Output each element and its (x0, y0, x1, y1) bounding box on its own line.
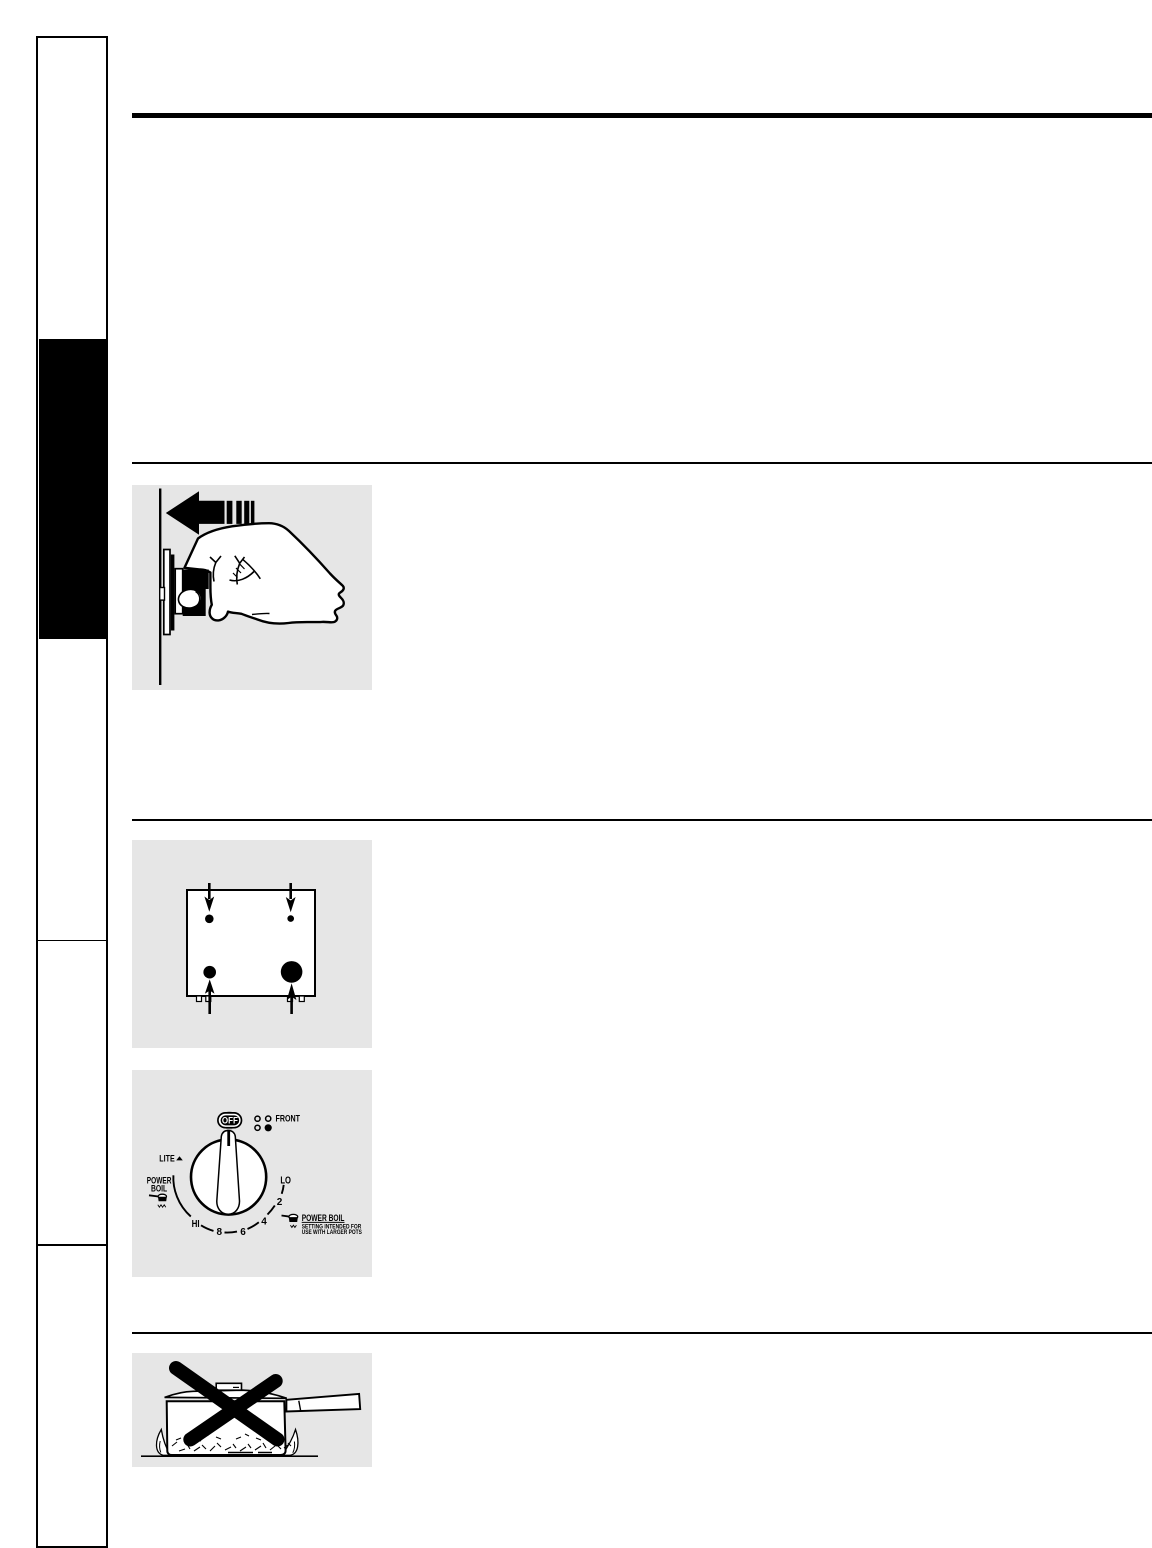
svg-text:BOIL: BOIL (151, 1184, 167, 1195)
svg-text:POWER BOIL: POWER BOIL (302, 1213, 345, 1224)
svg-text:HI: HI (192, 1219, 200, 1230)
svg-text:6: 6 (240, 1227, 246, 1238)
svg-text:LO: LO (280, 1176, 291, 1187)
svg-text:LITE: LITE (159, 1153, 175, 1164)
svg-text:2: 2 (277, 1197, 283, 1208)
svg-text:FRONT: FRONT (276, 1114, 301, 1125)
svg-text:USE WITH LARGER POTS: USE WITH LARGER POTS (302, 1229, 362, 1236)
svg-text:8: 8 (217, 1227, 223, 1238)
svg-text:4: 4 (261, 1217, 267, 1228)
svg-text:OFF: OFF (222, 1116, 238, 1126)
